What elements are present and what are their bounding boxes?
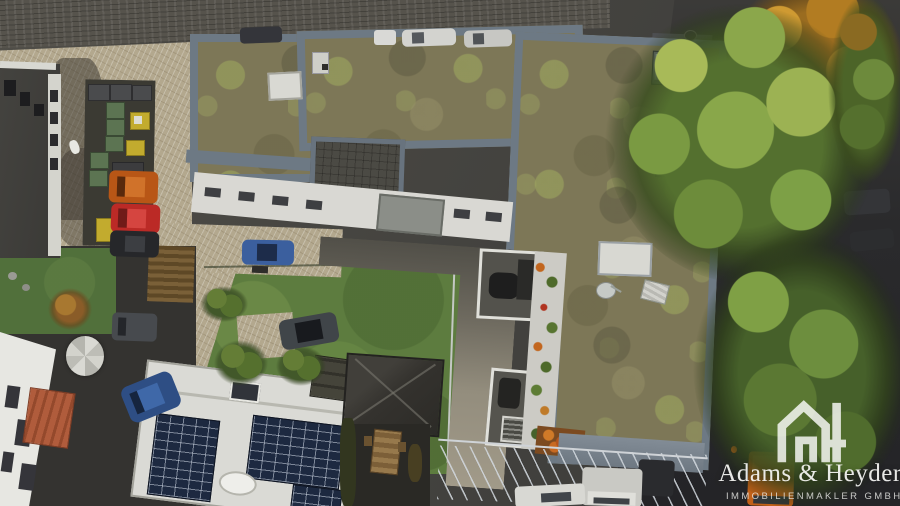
car-windshield [117, 176, 126, 196]
car-orange [108, 170, 158, 204]
solar-panel-array [147, 413, 221, 502]
green-waste-bin [105, 136, 124, 152]
bin-label [134, 116, 142, 124]
window [485, 212, 502, 222]
truck-white-bottom [581, 467, 642, 506]
car-black [110, 230, 160, 258]
doormat [252, 266, 268, 274]
window [453, 209, 470, 219]
window [272, 195, 289, 205]
window [238, 191, 255, 201]
garden-chair [398, 442, 406, 452]
car-dark-street-top [240, 26, 283, 43]
window [204, 187, 221, 197]
window [50, 112, 58, 124]
satellite-dish [596, 282, 616, 299]
hedge [340, 418, 356, 506]
car-blue-front [242, 240, 294, 266]
car-white-partial [374, 30, 396, 45]
green-waste-bin [106, 119, 125, 136]
garden-stone [22, 284, 30, 291]
ah-house-logo-icon [774, 398, 846, 464]
patio-umbrella [66, 336, 104, 376]
aerial-photo: Adams & Heyder IMMOBILIENMAKLER GMBH [0, 0, 900, 506]
car-windshield [294, 319, 323, 343]
car-red [111, 203, 161, 234]
yellow-waste-bin [126, 140, 145, 156]
car-windshield [473, 33, 484, 44]
car-windshield [118, 208, 128, 227]
garden-stone [8, 272, 17, 280]
green-waste-bin [89, 170, 108, 187]
roof-panel [312, 52, 329, 74]
tree-small-autumn-left [48, 288, 92, 330]
roof-access-box [597, 241, 652, 277]
balcony-furniture [497, 377, 522, 409]
gray-waste-bin [132, 85, 152, 101]
car-roof [125, 236, 146, 253]
solar-panel-array [245, 415, 346, 490]
car-white-street-top [402, 28, 457, 47]
van-windshield [541, 492, 571, 503]
car-windshield [412, 32, 424, 43]
car-white-street-top [464, 29, 513, 48]
truck-windshield [593, 497, 629, 504]
window [50, 134, 58, 146]
watermark-subtitle-text: IMMOBILIENMAKLER GMBH [726, 491, 894, 502]
hedge [408, 444, 422, 482]
window [50, 90, 58, 102]
window [50, 158, 58, 170]
roof-vent [322, 64, 328, 70]
green-waste-bin [90, 152, 109, 169]
red-tile-roof [22, 387, 75, 449]
window [306, 200, 323, 210]
gray-waste-bin [88, 84, 110, 101]
garden-table [370, 429, 402, 476]
window [34, 104, 44, 116]
car-roof [125, 177, 146, 198]
gray-waste-bin [110, 84, 132, 101]
car-windshield [257, 244, 277, 261]
van-windshield [118, 317, 127, 335]
window [20, 92, 30, 106]
window [4, 80, 16, 96]
van-dark-bottom [637, 459, 675, 497]
van-white-bottom [514, 483, 585, 506]
car-roof [127, 209, 147, 229]
roof-ridge [350, 364, 436, 423]
van-gray [112, 312, 158, 342]
watermark-brand-text: Adams & Heyder [718, 460, 900, 488]
garden-chair [364, 436, 372, 446]
concrete-deck [376, 194, 445, 237]
skylight [267, 71, 302, 101]
green-waste-bin [106, 102, 125, 119]
balcony-furniture [488, 272, 519, 300]
